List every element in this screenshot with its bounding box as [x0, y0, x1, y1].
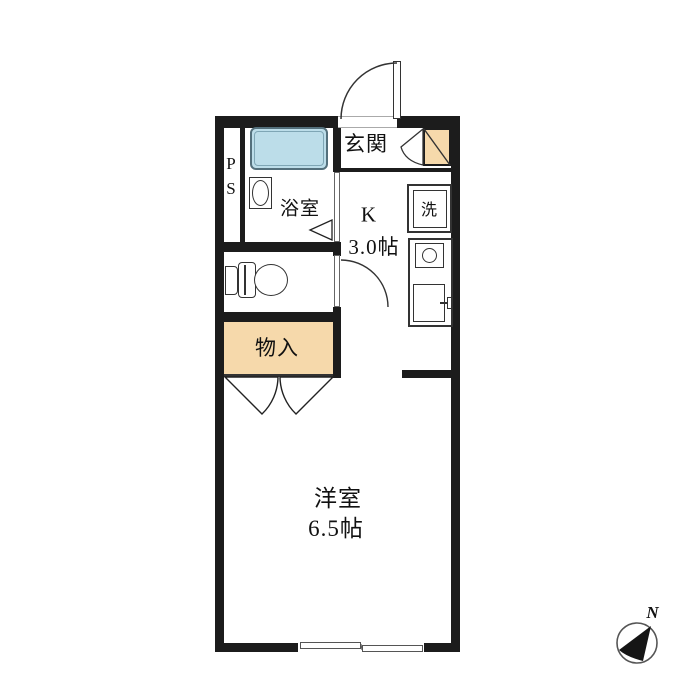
sink-faucet-spout — [440, 302, 448, 304]
wall-toilet-bottom — [221, 312, 341, 322]
bathroom-door-panel — [334, 172, 340, 242]
western-room-label: 洋室 — [314, 479, 362, 513]
window-pane-left — [300, 642, 361, 649]
wall-toilet-k-upper — [333, 242, 341, 256]
floorplan-canvas: 玄関 P S 浴室 K 3.0帖 洗 物入 洋室 6.5帖 N — [0, 0, 700, 700]
entrance-threshold — [338, 116, 397, 128]
window-pane-right — [362, 645, 423, 652]
toilet-door-arc — [341, 260, 388, 307]
compass-needle — [619, 626, 651, 661]
washer-label: 洗 — [421, 196, 438, 220]
storage-label: 物入 — [255, 332, 299, 362]
wall-right — [451, 116, 460, 652]
shoe-cabinet-door-wedge — [401, 129, 423, 165]
pipe-space-label-p: P — [226, 151, 235, 176]
bathtub — [250, 127, 328, 170]
entrance-door-arc — [341, 63, 397, 119]
wall-pipe-space — [240, 124, 245, 248]
western-room-size-label: 6.5帖 — [308, 509, 364, 543]
entrance-door-leaf — [393, 61, 401, 119]
genkan-step-edge — [337, 168, 460, 172]
plan-linework — [0, 0, 700, 700]
wall-bathroom-bottom — [221, 242, 341, 252]
storage-bottom-line — [224, 374, 333, 377]
shoe-cabinet — [423, 128, 451, 166]
bathroom-label: 浴室 — [280, 194, 320, 221]
pipe-space-label-s: S — [226, 176, 235, 201]
pipe-space-label: P S — [226, 151, 235, 201]
entrance-label: 玄関 — [344, 128, 388, 158]
north-label: N — [646, 603, 659, 623]
stove-burner — [422, 248, 437, 263]
wall-kitchen-living-stub — [402, 370, 460, 378]
kitchen-size-label: 3.0帖 — [348, 231, 399, 261]
toilet-back-shelf — [225, 266, 238, 295]
compass-circle — [617, 623, 657, 663]
toilet-tank-line — [244, 265, 246, 295]
toilet-bowl — [254, 264, 288, 296]
wall-bottom-right-segment — [424, 643, 460, 652]
storage-door-right — [280, 377, 333, 414]
kitchen-label: K — [361, 203, 377, 228]
bathtub-inner-rim — [254, 131, 324, 166]
bathroom-door-triangle — [310, 220, 332, 240]
storage-door-left — [225, 377, 278, 414]
wall-bottom-left-segment — [215, 643, 298, 652]
wall-left — [215, 116, 224, 652]
wash-basin-bowl — [252, 180, 269, 206]
toilet-door-leaf — [334, 255, 340, 307]
